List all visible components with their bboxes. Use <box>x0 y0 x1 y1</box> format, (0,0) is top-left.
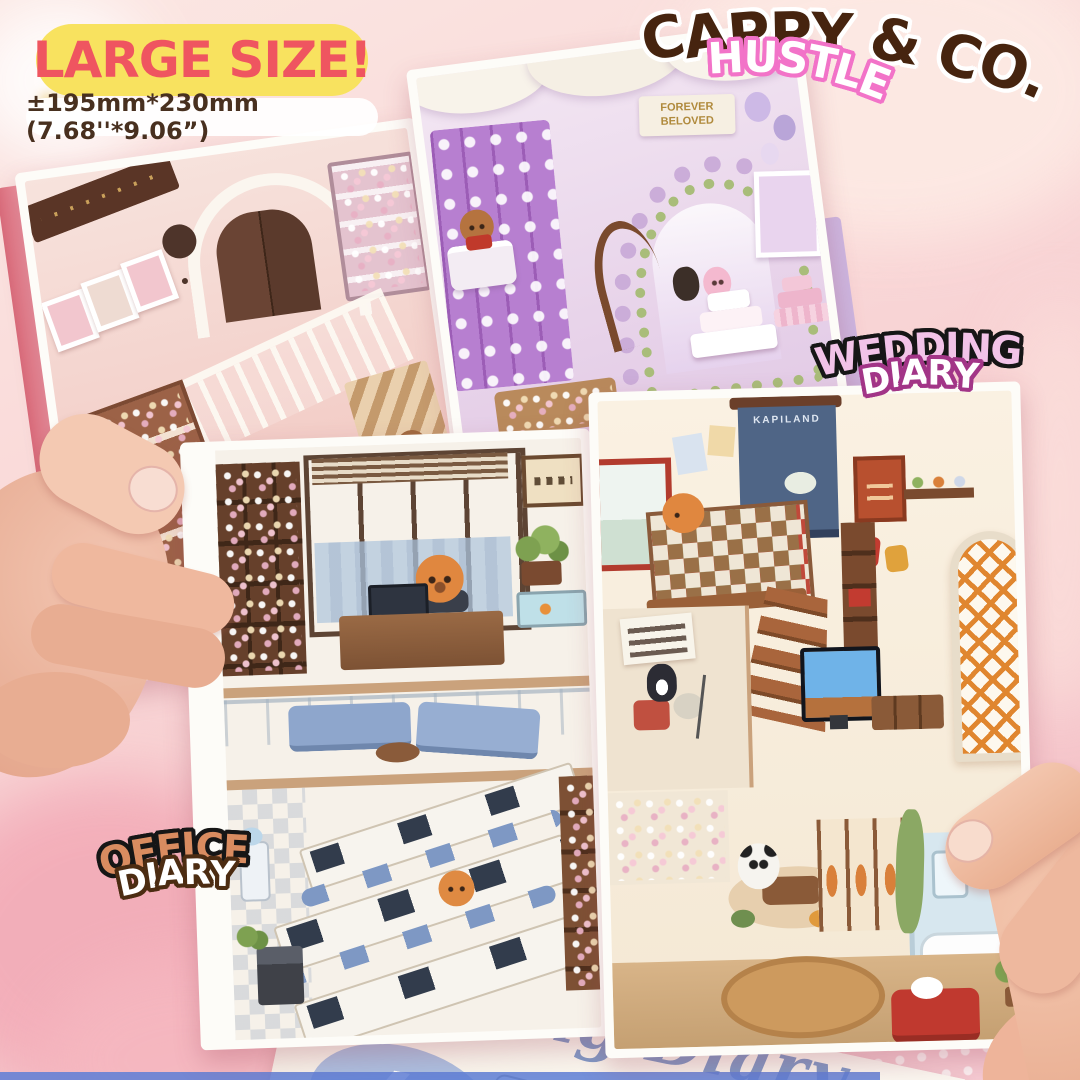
size-badge: LARGE SIZE! <box>36 24 368 96</box>
tv-stand <box>830 715 848 729</box>
screen-title: KAPILAND <box>738 413 836 427</box>
balloon <box>759 142 780 166</box>
office-plant <box>231 917 270 956</box>
bonsai-pot <box>521 561 562 586</box>
product-photo: king Diary 收纳 造景 SIMNO® <box>0 0 1080 1080</box>
home-scene: KAPILAND <box>597 391 1028 1050</box>
bonsai-plant <box>510 522 569 566</box>
tv-cabinet <box>871 694 944 730</box>
pastry-goods <box>336 160 423 293</box>
office-scene <box>189 438 601 1041</box>
shelf-items <box>903 472 973 490</box>
wall-plaque <box>521 454 585 508</box>
office-page <box>180 428 611 1050</box>
office-interior <box>215 438 601 1041</box>
pantry-shelf <box>608 790 730 885</box>
banner-text: FOREVER BELOVED <box>647 100 728 130</box>
office-sticker-book: KAPILAND <box>174 377 1042 1078</box>
folding-screen-panels <box>816 818 905 932</box>
shop-sign <box>25 152 181 243</box>
supply-shelf <box>559 775 602 991</box>
shelf-items <box>563 779 602 986</box>
dimensions-pill: ±195mm*230mm (7.68''*9.06”) <box>26 98 378 136</box>
movie-poster <box>853 455 907 522</box>
hanging-bag <box>884 544 909 573</box>
bookshelf <box>216 462 307 677</box>
home-page: KAPILAND <box>588 381 1037 1058</box>
tv <box>800 646 882 722</box>
penguin-drummer <box>646 663 677 702</box>
pastry-fridge <box>327 151 432 302</box>
dimensions-text: ±195mm*230mm (7.68''*9.06”) <box>26 89 378 145</box>
band-banner <box>620 613 696 666</box>
lounge-sofa <box>415 701 540 759</box>
coffee-table <box>375 742 420 764</box>
balloon <box>772 113 797 142</box>
photo-frame <box>754 170 822 258</box>
size-badge-text: LARGE SIZE! <box>33 35 372 85</box>
package-edge-strip <box>0 1072 880 1080</box>
wall-poster <box>672 433 708 475</box>
executive-desk <box>339 611 505 671</box>
drum <box>633 700 670 731</box>
balloon <box>743 90 773 123</box>
wall-poster <box>707 425 735 457</box>
aquarium <box>516 590 587 628</box>
stool <box>731 909 755 928</box>
wall-shelf <box>904 488 974 500</box>
shelf-items <box>220 466 303 673</box>
arch-window <box>949 530 1028 762</box>
jar-items <box>612 794 726 881</box>
wedding-banner: FOREVER BELOVED <box>639 94 736 136</box>
